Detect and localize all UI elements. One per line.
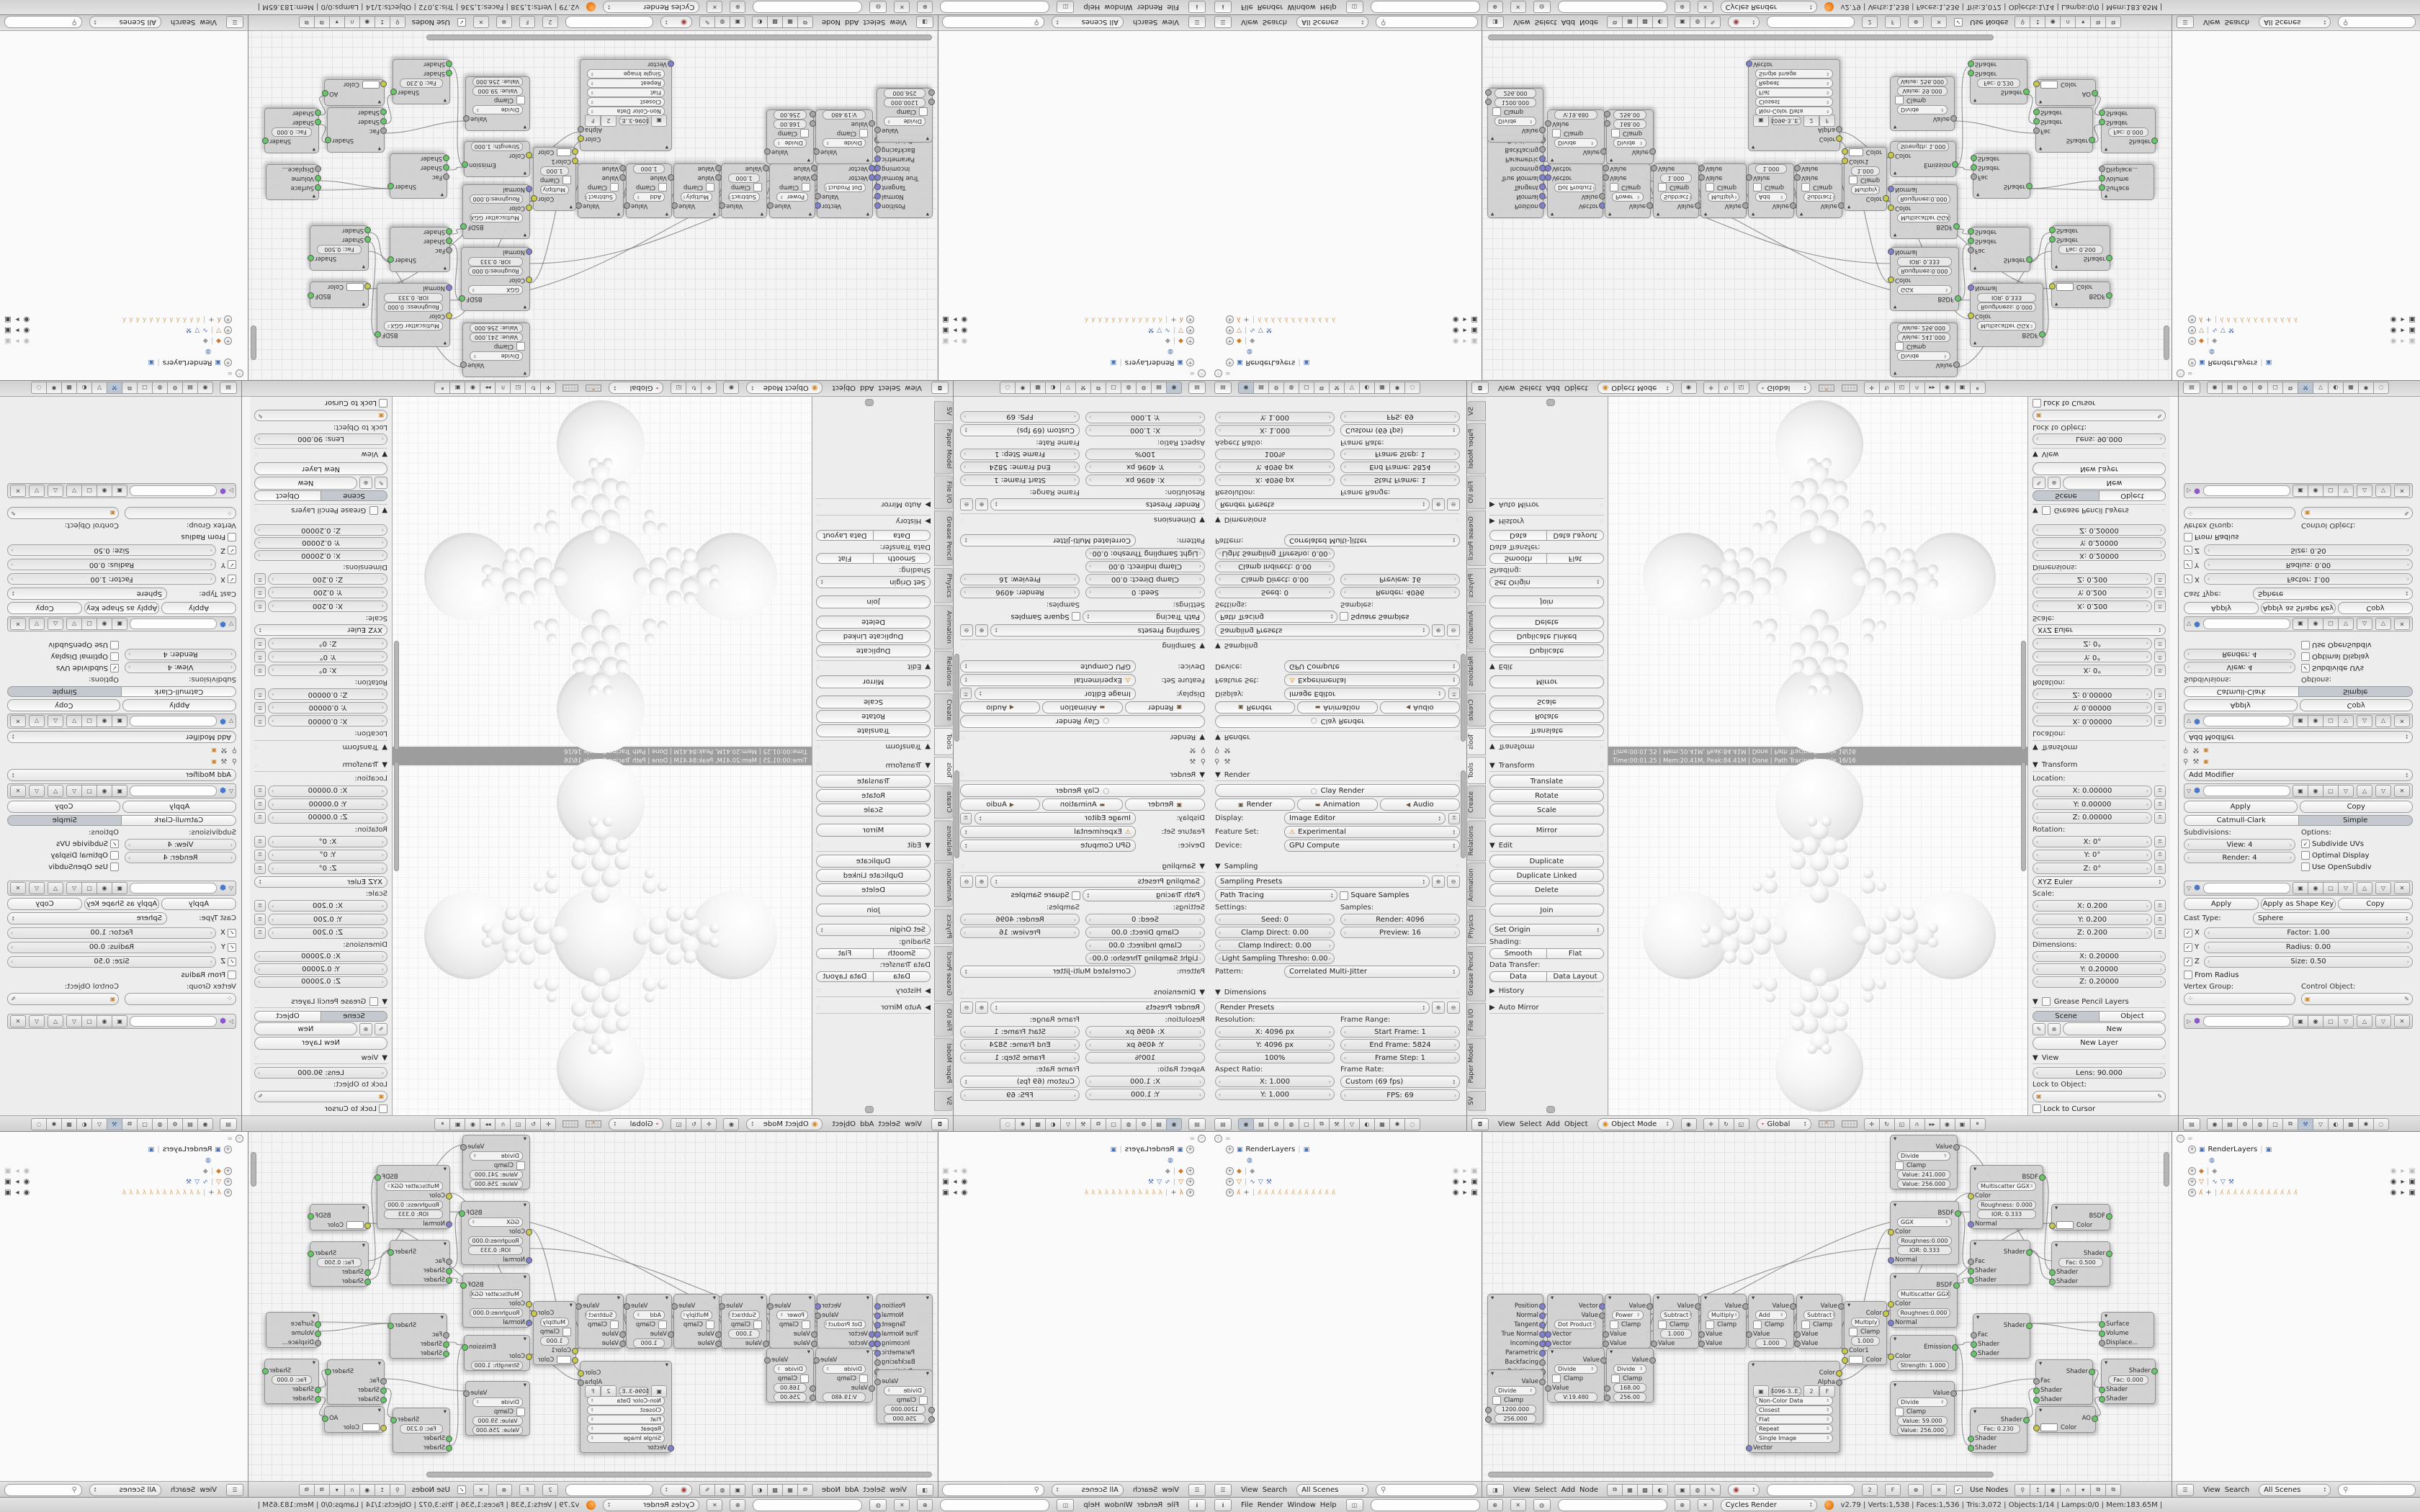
menu-add[interactable]: Add bbox=[1559, 19, 1577, 27]
node-refraction-bsdf[interactable]: ▾BSDFGGX⇕ColorRoughnes:0.000IOR: 0.333No… bbox=[461, 1201, 530, 1265]
header-icon-3[interactable]: ∩ bbox=[495, 1118, 511, 1130]
output-socket[interactable] bbox=[815, 202, 821, 209]
property-tab-6[interactable]: ⚒ bbox=[2298, 1118, 2313, 1130]
menu-search[interactable]: Search bbox=[169, 1486, 197, 1494]
checkbox-optimal-display[interactable] bbox=[110, 652, 119, 661]
clamp-checkbox[interactable] bbox=[563, 1328, 571, 1336]
modifier-toggle-2[interactable]: ▢ bbox=[2323, 785, 2339, 797]
input-socket[interactable] bbox=[1968, 1221, 1974, 1228]
output-socket[interactable] bbox=[390, 1417, 397, 1423]
output-socket[interactable] bbox=[390, 89, 397, 95]
vertex-group-field[interactable]: ⁘ bbox=[125, 993, 236, 1005]
toolshelf-tab-animation[interactable]: Animation bbox=[1467, 863, 1486, 907]
output-socket[interactable] bbox=[1539, 1359, 1546, 1366]
menu-render[interactable]: Render bbox=[1135, 1501, 1165, 1509]
node-value-256-00[interactable]: 256.00 bbox=[1613, 1392, 1646, 1402]
pin-icon[interactable]: ⚲ bbox=[1201, 746, 1206, 754]
panel-section-edit[interactable]: ▼Edit∷ bbox=[1489, 660, 1604, 672]
output-socket[interactable] bbox=[815, 193, 821, 199]
use-nodes-checkbox[interactable]: ✓ bbox=[1954, 1485, 1963, 1494]
toolshelf-tab-relations[interactable]: Relations bbox=[1467, 651, 1486, 692]
input-socket[interactable] bbox=[526, 204, 532, 211]
property-tab-4[interactable]: ▢ bbox=[2267, 1118, 2283, 1130]
menu-view[interactable]: View bbox=[1239, 19, 1260, 27]
node-dropdown-divide[interactable]: Divide⇕ bbox=[1613, 1364, 1646, 1374]
node-value-1-000[interactable]: 1.000 bbox=[540, 1336, 569, 1346]
numfield-x-0[interactable]: ‹X: 0°› bbox=[268, 665, 387, 676]
node-node5[interactable]: ▾ValueAdd⇕ClampValue1.000 bbox=[626, 1294, 672, 1349]
property-tab-7[interactable]: ▽ bbox=[1060, 382, 1076, 395]
manipulator-2[interactable]: ◱ bbox=[671, 1118, 686, 1130]
numfield-z-0-00000[interactable]: ‹Z: 0.00000› bbox=[2033, 812, 2152, 824]
input-socket[interactable] bbox=[1545, 1331, 1551, 1338]
input-socket[interactable] bbox=[2033, 1387, 2040, 1394]
input-socket[interactable] bbox=[1698, 165, 1705, 171]
input-socket[interactable] bbox=[715, 174, 722, 181]
node-node24[interactable]: ▾ShaderFac: 0.000ShaderShader bbox=[264, 1359, 319, 1404]
node-tool-6[interactable]: ⧉ bbox=[2105, 17, 2121, 29]
clamp-checkbox[interactable] bbox=[610, 184, 619, 192]
input-socket[interactable] bbox=[1968, 238, 1974, 244]
modifier-toggle-1[interactable]: ◉ bbox=[2308, 485, 2323, 497]
header-icon-1[interactable]: ↻ bbox=[525, 1118, 541, 1130]
node-dropdown-subtract[interactable]: Subtract⇕ bbox=[728, 192, 760, 202]
node-value-1-000[interactable]: 1.000 bbox=[1755, 164, 1787, 174]
input-socket[interactable] bbox=[619, 165, 626, 171]
catmull-clark-segment[interactable]: Catmull-Clark bbox=[2184, 686, 2299, 697]
header-icon-7[interactable]: ⏸ bbox=[434, 382, 450, 395]
property-tab-1[interactable]: ▤ bbox=[1253, 1118, 1269, 1130]
display-mode-selector[interactable]: All Scenes▴▾ bbox=[1052, 17, 1124, 29]
property-tab-9[interactable]: ▦ bbox=[2343, 382, 2359, 395]
lock-toggle[interactable]: ⚿ bbox=[2154, 836, 2166, 847]
lock-toggle[interactable]: ⚿ bbox=[254, 798, 266, 810]
input-socket[interactable] bbox=[928, 1407, 935, 1413]
node-tool-0[interactable]: ⚲ bbox=[390, 1484, 405, 1496]
clamp-checkbox[interactable] bbox=[1610, 184, 1618, 192]
checkbox-square-samples[interactable] bbox=[1340, 891, 1348, 900]
visibility-icon[interactable]: ◉ bbox=[23, 337, 30, 345]
clamp-checkbox[interactable] bbox=[1895, 1408, 1904, 1416]
input-socket[interactable] bbox=[443, 164, 449, 171]
simple-segment[interactable]: Simple bbox=[2298, 686, 2414, 697]
node-node10[interactable]: ▾ValueDivide⇕Clamp168.00256.00 bbox=[766, 1348, 814, 1403]
panel-section-edit[interactable]: ▼Edit∷ bbox=[816, 660, 931, 672]
node-node25[interactable]: ▾ShaderFac: 0.230ShaderShader bbox=[1970, 59, 2027, 104]
output-socket[interactable] bbox=[813, 1357, 820, 1364]
pin-icon[interactable]: ⚲ bbox=[2183, 758, 2188, 766]
object-field[interactable]: ▣✎ bbox=[2301, 993, 2413, 1005]
numfield-x-0-200[interactable]: ‹X: 0.200› bbox=[268, 600, 387, 612]
node-value-roughnes-0-000[interactable]: Roughnes:0.000 bbox=[470, 194, 523, 204]
node-value-256-000[interactable]: 256.000 bbox=[884, 89, 926, 98]
node-value-value-256-000[interactable]: Value: 256.000 bbox=[1897, 323, 1950, 333]
lock-toggle[interactable]: ⚿ bbox=[254, 863, 266, 874]
screen-layout-icon[interactable]: ◫ bbox=[1057, 1, 1074, 14]
selectability-icon[interactable]: ▸ bbox=[15, 326, 19, 334]
tree-type-2[interactable]: ▩ bbox=[1637, 1484, 1653, 1496]
input-socket[interactable] bbox=[928, 1416, 935, 1423]
input-socket[interactable] bbox=[1968, 1277, 1974, 1284]
numfield-render-4[interactable]: ‹Render: 4› bbox=[125, 649, 236, 660]
node-node11[interactable]: ▾ColorAlpha▣4096-3..E..2FNon-Color Data⇕… bbox=[1748, 1361, 1840, 1453]
selectability-icon[interactable]: ▸ bbox=[15, 1167, 19, 1175]
axis-checkbox-X[interactable]: ✓ bbox=[228, 575, 236, 584]
node-dropdown-subtract[interactable]: Subtract⇕ bbox=[728, 1310, 760, 1320]
node-value-value-241-000[interactable]: Value: 241.000 bbox=[470, 1170, 523, 1179]
numfield-radius-0-00[interactable]: ‹Radius: 0.00› bbox=[2204, 559, 2413, 571]
apply-button[interactable]: Apply bbox=[2184, 699, 2298, 711]
outliner-row-renderlayers[interactable]: +▣RenderLayers|▣ bbox=[2175, 357, 2419, 368]
flat-segment[interactable]: Flat bbox=[816, 553, 874, 564]
node-value-1200-000[interactable]: 1200.000 bbox=[884, 98, 926, 107]
device-selector[interactable]: GPU Compute▴▾ bbox=[960, 660, 1136, 672]
node-value-value-241-000[interactable]: Value: 241.000 bbox=[1897, 333, 1950, 342]
numfield-z-0-20000[interactable]: ‹Z: 0.20000› bbox=[2033, 524, 2166, 536]
node-node5[interactable]: ▾ValueAdd⇕ClampValue1.000 bbox=[1748, 163, 1794, 218]
mirror-button[interactable]: Mirror bbox=[1489, 824, 1604, 837]
modifier-toggle-2[interactable]: ▢ bbox=[81, 715, 97, 727]
panel-section-auto-mirror[interactable]: ▶Auto Mirror∷ bbox=[1489, 498, 1604, 510]
outliner-row[interactable]: +ʎ+|ʎʎʎʎʎʎʎʎʎʎʎʎ◉▸▣ bbox=[1213, 1187, 1481, 1198]
editor-type-button[interactable]: ◘ bbox=[931, 382, 949, 395]
node-value-1-000[interactable]: 1.000 bbox=[1660, 174, 1692, 183]
node-dropdown-multiscatter-ggx[interactable]: Multiscatter GGX⇕ bbox=[1897, 1290, 1950, 1299]
node-node19[interactable]: ▾BSDFColor bbox=[310, 1204, 369, 1230]
property-tab-7[interactable]: ▽ bbox=[1344, 382, 1360, 395]
remove-preset-button[interactable]: ⊖ bbox=[1447, 624, 1460, 636]
clamp-checkbox[interactable] bbox=[1658, 184, 1667, 192]
input-socket[interactable] bbox=[446, 1277, 452, 1284]
move-up-button[interactable]: △ bbox=[2357, 485, 2372, 497]
apply-as-shape-key-button[interactable]: Apply as Shape Key bbox=[2261, 602, 2336, 614]
node-dropdown-add[interactable]: Add⇕ bbox=[1755, 1310, 1787, 1320]
lock-toggle[interactable]: ⚿ bbox=[2154, 638, 2166, 649]
display-mode-selector[interactable]: All Scenes▴▾ bbox=[89, 17, 161, 29]
modifier-name-field[interactable] bbox=[130, 786, 217, 796]
input-socket[interactable] bbox=[2049, 1223, 2056, 1229]
axis-checkbox-X[interactable]: ✓ bbox=[2184, 575, 2192, 584]
input-socket[interactable] bbox=[715, 165, 722, 171]
input-socket[interactable] bbox=[315, 166, 321, 172]
input-socket[interactable] bbox=[2049, 227, 2056, 233]
copy-button[interactable]: Copy bbox=[7, 801, 121, 813]
screen-layout-field[interactable] bbox=[1371, 1499, 1480, 1511]
numfield-start-frame-1[interactable]: ‹Start Frame: 1› bbox=[1340, 474, 1460, 486]
h-scrollbar[interactable] bbox=[1488, 1472, 1994, 1477]
clamp-checkbox[interactable] bbox=[800, 1374, 809, 1383]
numfield-x-4096-px[interactable]: ‹X: 4096 px› bbox=[1085, 474, 1205, 486]
v-scrollbar[interactable] bbox=[251, 325, 256, 360]
manipulator-0[interactable]: ✛ bbox=[701, 1118, 717, 1130]
data-segment[interactable]: Data bbox=[1489, 971, 1547, 982]
property-tab-5[interactable]: ⧉ bbox=[1314, 382, 1330, 395]
node-node11[interactable]: ▾ColorAlpha▣4096-3..E..2FNon-Color Data⇕… bbox=[580, 59, 672, 151]
node-node7[interactable]: ▾ColorMultiply⇕Clamp1.000Color1Color bbox=[533, 147, 576, 211]
object-field[interactable]: ▣✎ bbox=[2033, 410, 2166, 422]
input-socket[interactable] bbox=[446, 1259, 452, 1265]
numfield-light-sampling-thresho-0-00[interactable]: ‹Light Sampling Thresho: 0.00› bbox=[1215, 548, 1335, 559]
device-selector[interactable]: GPU Compute▴▾ bbox=[1284, 840, 1460, 852]
numfield-size-0-50[interactable]: ‹Size: 0.50› bbox=[7, 545, 216, 557]
visibility-icon[interactable]: ◉ bbox=[2390, 337, 2397, 345]
toolshelf-tab-paper-model[interactable]: Paper Model bbox=[1467, 423, 1486, 474]
selectability-icon[interactable]: ▸ bbox=[1464, 1189, 1467, 1197]
apply-as-shape-key-button[interactable]: Apply as Shape Key bbox=[84, 898, 159, 910]
outliner-row-renderlayers[interactable]: +▣RenderLayers|▣ bbox=[1, 357, 245, 368]
feature-set-selector[interactable]: ⚠Experimental▴▾ bbox=[960, 674, 1136, 686]
node-node22[interactable]: ▾SurfaceVolumeDisplace... bbox=[2101, 164, 2154, 200]
clamp-checkbox[interactable] bbox=[859, 1374, 868, 1383]
numfield-x-0-200[interactable]: ‹X: 0.200› bbox=[268, 900, 387, 912]
input-socket[interactable] bbox=[668, 1445, 674, 1452]
image-name[interactable]: 4096-3..E.. bbox=[1771, 1387, 1801, 1396]
visibility-icon[interactable]: ◉ bbox=[961, 1189, 967, 1197]
property-tab-11[interactable]: ◌ bbox=[2373, 1118, 2389, 1130]
axis-checkbox-X[interactable]: ✓ bbox=[228, 929, 236, 937]
checkbox-lock-to-cursor[interactable] bbox=[2033, 399, 2041, 408]
node-dropdown-add[interactable]: Add⇕ bbox=[633, 192, 665, 202]
menu-view[interactable]: View bbox=[2201, 19, 2223, 27]
header-icon-4[interactable]: ▸▸ bbox=[480, 1118, 496, 1130]
node-canvas[interactable]: ▾PositionNormalTangentTrue NormalIncomin… bbox=[1482, 1132, 2172, 1482]
node-node2[interactable]: ▾ValuePower⇕ClampValueValue bbox=[769, 1294, 815, 1349]
node-node3[interactable]: ▾ValueSubtract⇕Clamp1.000Value bbox=[721, 1294, 767, 1349]
display-mode-selector[interactable]: All Scenes▴▾ bbox=[1296, 17, 1368, 29]
input-socket[interactable] bbox=[869, 1331, 875, 1338]
panel-section-transform[interactable]: ▼Transform∷ bbox=[2033, 740, 2166, 752]
numfield-z-0-200[interactable]: ‹Z: 0.200› bbox=[268, 927, 387, 939]
translate-button[interactable]: Translate bbox=[1489, 775, 1604, 788]
editor-type-button[interactable]: ☰ bbox=[226, 17, 243, 29]
outliner-row[interactable]: +ʎ+|ʎʎʎʎʎʎʎʎʎʎʎʎ◉▸▣ bbox=[1, 1187, 245, 1198]
numfield-lens-90-000[interactable]: ‹Lens: 90.000› bbox=[254, 433, 387, 445]
node-value-value-256-000[interactable]: Value: 256.000 bbox=[470, 323, 523, 333]
use-nodes-checkbox[interactable]: ✓ bbox=[1954, 18, 1963, 27]
output-socket[interactable] bbox=[2026, 1323, 2033, 1329]
clamp-checkbox[interactable] bbox=[802, 1320, 810, 1329]
copy-button[interactable]: Copy bbox=[7, 602, 82, 614]
output-socket[interactable] bbox=[459, 1210, 465, 1217]
add-button[interactable]: ⊕ bbox=[359, 1023, 372, 1035]
panel-section-history[interactable]: ▶History∷ bbox=[1489, 985, 1604, 997]
property-tab-3[interactable]: ◍ bbox=[2252, 382, 2268, 395]
outliner-row[interactable]: -∞ bbox=[939, 1133, 1207, 1144]
input-socket[interactable] bbox=[2049, 283, 2056, 289]
node-value-1200-000[interactable]: 1200.000 bbox=[884, 1405, 926, 1414]
node-node3[interactable]: ▾ValueSubtract⇕Clamp1.000Value bbox=[721, 163, 767, 218]
input-socket[interactable] bbox=[1794, 174, 1801, 181]
display-mode-selector[interactable]: All Scenes▴▾ bbox=[1296, 1484, 1368, 1496]
translate-button[interactable]: Translate bbox=[1489, 724, 1604, 737]
numfield-z-0[interactable]: ‹Z: 0°› bbox=[2033, 638, 2152, 649]
lock-toggle[interactable]: ⚿ bbox=[2154, 651, 2166, 662]
node-dropdown-repeat[interactable]: Repeat⇕ bbox=[1755, 78, 1833, 88]
numfield-x-0-200[interactable]: ‹X: 0.200› bbox=[2033, 900, 2152, 912]
pin-icon[interactable]: ⚲ bbox=[232, 746, 237, 754]
numfield-factor-1-00[interactable]: ‹Factor: 1.00› bbox=[2204, 574, 2413, 585]
custom-69-fps-dropdown[interactable]: Custom (69 fps)▴▾ bbox=[960, 1076, 1080, 1088]
checkbox-use-opensubdiv[interactable] bbox=[2301, 641, 2310, 649]
node-dropdown-power[interactable]: Power⇕ bbox=[1612, 1310, 1644, 1320]
numfield-y-0-200[interactable]: ‹Y: 0.200› bbox=[268, 914, 387, 925]
node-dropdown-subtract[interactable]: Subtract⇕ bbox=[1803, 192, 1835, 202]
property-tab-6[interactable]: ⚒ bbox=[107, 1118, 122, 1130]
node-value-fac-0-230[interactable]: Fac: 0.230 bbox=[400, 78, 443, 88]
numfield-fps-69[interactable]: ‹FPS: 69› bbox=[960, 1089, 1080, 1101]
numfield-y-4096-px[interactable]: ‹Y: 4096 px› bbox=[1215, 1039, 1335, 1050]
input-socket[interactable] bbox=[1888, 1354, 1894, 1360]
numfield-preview-16[interactable]: ‹Preview: 16› bbox=[1340, 927, 1460, 938]
apply-button[interactable]: Apply bbox=[123, 699, 237, 711]
header-icon-0[interactable]: ✛ bbox=[1864, 382, 1880, 395]
input-socket[interactable] bbox=[2099, 1331, 2105, 1337]
node-node3[interactable]: ▾ValueSubtract⇕Clamp1.000Value bbox=[1653, 1294, 1699, 1349]
lock-toggle[interactable]: ⚿ bbox=[2154, 850, 2166, 861]
node-value-1-000[interactable]: 1.000 bbox=[540, 166, 569, 176]
editor-type-button[interactable]: ☰ bbox=[1214, 1484, 1232, 1496]
modifier-toggle-1[interactable]: ◉ bbox=[2308, 882, 2323, 894]
toolshelf-scroll[interactable] bbox=[1546, 399, 1555, 406]
numfield-x-1-000[interactable]: ‹X: 1.000› bbox=[1215, 1076, 1335, 1087]
input-socket[interactable] bbox=[446, 1436, 452, 1442]
new-layer-button[interactable]: New Layer bbox=[2033, 462, 2166, 475]
editor-type-button[interactable]: ▤ bbox=[1188, 1118, 1206, 1130]
renderability-icon[interactable]: ▣ bbox=[942, 315, 949, 323]
viewport-scrollbar[interactable] bbox=[2021, 641, 2026, 750]
menu-select[interactable]: Select bbox=[876, 1120, 902, 1128]
rotate-button[interactable]: Rotate bbox=[1489, 710, 1604, 723]
manipulator-1[interactable]: ↻ bbox=[686, 1118, 702, 1130]
lock-toggle[interactable]: ⚿ bbox=[2154, 786, 2166, 797]
add-preset-button[interactable]: ⊕ bbox=[975, 624, 988, 636]
lock-toggle[interactable]: ⚿ bbox=[254, 573, 266, 585]
outliner-row[interactable]: +▽|∿▽⚒◉▸▣ bbox=[2175, 1176, 2419, 1187]
checkbox-use-opensubdiv[interactable] bbox=[110, 641, 119, 649]
delete-button[interactable]: Delete bbox=[1489, 883, 1604, 896]
node-value-fac-0-500[interactable]: Fac: 0.500 bbox=[317, 1258, 362, 1267]
input-socket[interactable] bbox=[1545, 165, 1551, 171]
property-tab-11[interactable]: ◌ bbox=[1404, 382, 1420, 395]
property-tab-1[interactable]: ▤ bbox=[1253, 382, 1269, 395]
property-tab-7[interactable]: ▽ bbox=[91, 1118, 107, 1130]
property-tab-7[interactable]: ▽ bbox=[91, 382, 107, 395]
checkbox[interactable] bbox=[369, 506, 378, 515]
toolshelf-tab-file-i-o[interactable]: File I/O bbox=[934, 1003, 953, 1037]
output-socket[interactable] bbox=[1790, 202, 1796, 209]
renderability-icon[interactable]: ▣ bbox=[2409, 326, 2416, 334]
input-socket[interactable] bbox=[1842, 158, 1848, 164]
numfield-x-0[interactable]: ‹X: 0°› bbox=[268, 836, 387, 847]
toolshelf-tab-file-i-o[interactable]: File I/O bbox=[934, 476, 953, 510]
v-scrollbar[interactable] bbox=[2164, 325, 2169, 360]
outliner-row[interactable]: ◍ bbox=[2175, 346, 2419, 357]
numfield-view-4[interactable]: ‹View: 4› bbox=[2184, 839, 2295, 850]
panel-section-view[interactable]: ▼View∷ bbox=[254, 448, 387, 460]
input-socket[interactable] bbox=[1968, 1445, 1974, 1452]
menu-window[interactable]: Window bbox=[1285, 4, 1317, 12]
v-scrollbar[interactable] bbox=[1461, 654, 1466, 742]
visibility-icon[interactable]: ◉ bbox=[961, 337, 967, 345]
menu-file[interactable]: File bbox=[1239, 1501, 1255, 1509]
editor-type-button[interactable]: ◘ bbox=[931, 1118, 949, 1130]
data-layout-segment[interactable]: Data Layout bbox=[1546, 530, 1604, 541]
input-socket[interactable] bbox=[1888, 248, 1894, 255]
clay-render-button[interactable]: ◯Clay Render bbox=[1215, 715, 1460, 728]
node-node25[interactable]: ▾ShaderFac: 0.230ShaderShader bbox=[1970, 1408, 2027, 1453]
output-socket[interactable] bbox=[531, 195, 537, 202]
object-field[interactable]: ▣✎ bbox=[7, 993, 119, 1005]
display-mode-selector[interactable]: All Scenes▴▾ bbox=[2259, 17, 2331, 29]
input-socket[interactable] bbox=[811, 165, 817, 171]
checkbox-square-samples[interactable] bbox=[1072, 891, 1080, 900]
output-socket[interactable] bbox=[2023, 1417, 2030, 1423]
menu-add[interactable]: Add bbox=[1559, 1486, 1577, 1494]
add-preset-button[interactable]: ⊕ bbox=[975, 876, 988, 888]
numfield-view-4[interactable]: ‹View: 4› bbox=[125, 839, 236, 850]
clamp-checkbox[interactable] bbox=[658, 1320, 667, 1329]
node-value-roughness-0-000[interactable]: Roughness: 0.000 bbox=[1977, 1200, 2036, 1210]
header-icon-2[interactable]: ◱ bbox=[510, 382, 526, 395]
panel-section-grease-pencil-layers[interactable]: ▼Grease Pencil Layers∷ bbox=[2033, 996, 2166, 1009]
duplicate-button[interactable]: Duplicate bbox=[1489, 644, 1604, 657]
numfield-z-0-200[interactable]: ‹Z: 0.200› bbox=[2033, 927, 2152, 939]
sampling-presets-dropdown[interactable]: Sampling Presets▴▾ bbox=[990, 624, 1205, 636]
menu-file[interactable]: File bbox=[1165, 4, 1181, 12]
input-socket[interactable] bbox=[810, 1385, 816, 1392]
output-socket[interactable] bbox=[767, 202, 774, 209]
node-dropdown-add[interactable]: Add⇕ bbox=[633, 1310, 665, 1320]
node-node5[interactable]: ▾ValueAdd⇕ClampValue1.000 bbox=[1748, 1294, 1794, 1349]
input-socket[interactable] bbox=[1968, 1268, 1974, 1274]
numfield-y-0-200[interactable]: ‹Y: 0.200› bbox=[268, 587, 387, 598]
node-value-fac-0-000[interactable]: Fac: 0.000 bbox=[272, 127, 312, 137]
modifier-header[interactable]: ▽⬢▣◉▢▽△▽✕ bbox=[2184, 783, 2413, 798]
remove-preset-button[interactable]: ⊖ bbox=[960, 624, 973, 636]
rotate-button[interactable]: Rotate bbox=[1489, 789, 1604, 802]
output-socket[interactable] bbox=[813, 148, 820, 155]
node-dropdown-divide[interactable]: Divide⇕ bbox=[774, 1364, 807, 1374]
output-socket[interactable] bbox=[1953, 223, 1960, 230]
node-node0[interactable]: ▾PositionNormalTangentTrue NormalIncomin… bbox=[1487, 135, 1543, 218]
smooth-segment[interactable]: Smooth bbox=[1489, 948, 1547, 959]
output-socket[interactable] bbox=[262, 138, 269, 144]
numfield-y-0[interactable]: ‹Y: 0°› bbox=[2033, 651, 2152, 662]
image-users[interactable]: 2 bbox=[601, 114, 617, 127]
property-tab-2[interactable]: ⚙ bbox=[2237, 382, 2253, 395]
input-socket[interactable] bbox=[1651, 165, 1657, 171]
axis-checkbox-Z[interactable]: ✓ bbox=[228, 958, 236, 966]
node-refraction-bsdf[interactable]: ▾BSDFGGX⇕ColorRoughnes:0.000IOR: 0.333No… bbox=[1890, 247, 1959, 311]
editor-type-button[interactable]: ☰ bbox=[2177, 1484, 2194, 1496]
node-node4[interactable]: ▾ValueMultiply⇕ClampValueValue bbox=[1700, 163, 1747, 218]
input-socket[interactable] bbox=[315, 1331, 321, 1337]
h-scrollbar[interactable] bbox=[426, 35, 932, 40]
viewport-scrollbar[interactable] bbox=[2021, 762, 2026, 871]
numfield-y-1-000[interactable]: ‹Y: 1.000› bbox=[1215, 412, 1335, 423]
menu-add[interactable]: Add bbox=[843, 1486, 861, 1494]
delete-modifier-button[interactable]: ✕ bbox=[10, 485, 26, 497]
search-input[interactable]: ⚲ bbox=[4, 17, 82, 29]
move-up-button[interactable]: △ bbox=[2357, 618, 2372, 630]
users-count-button[interactable]: 2 bbox=[1862, 1484, 1878, 1496]
node-node0[interactable]: ▾PositionNormalTangentTrue NormalIncomin… bbox=[1487, 1294, 1543, 1377]
axis-checkbox-Z[interactable]: ✓ bbox=[2184, 958, 2192, 966]
modifier-toggle-0[interactable]: ▣ bbox=[2293, 1015, 2308, 1027]
lock-toggle[interactable]: ⚿ bbox=[254, 786, 266, 797]
toolshelf-tab-physics[interactable]: Physics bbox=[1467, 909, 1486, 944]
scale-button[interactable]: Scale bbox=[1489, 804, 1604, 816]
